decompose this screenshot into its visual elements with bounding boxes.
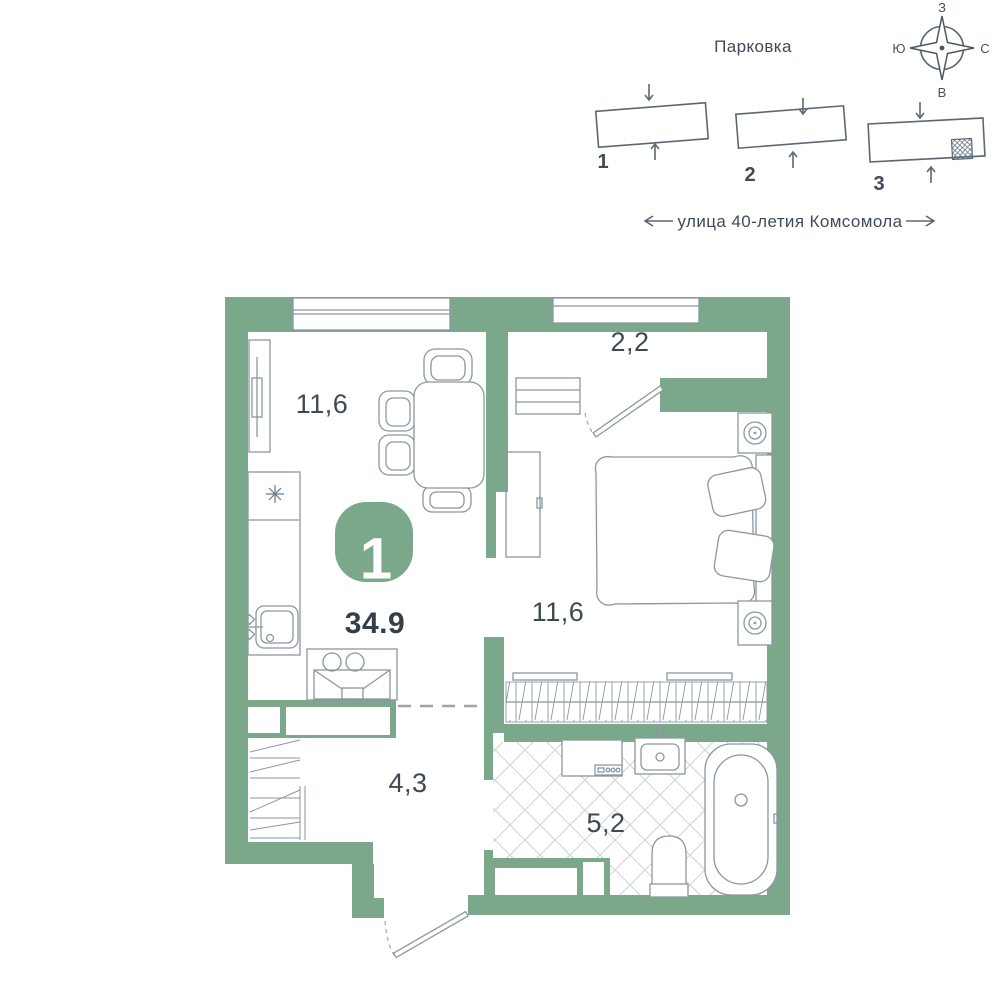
bedroom-wardrobe — [506, 452, 542, 557]
entrance-door — [385, 912, 468, 958]
bedroom-area-label: 11,6 — [532, 597, 585, 627]
bedside-table-lamp — [738, 413, 772, 453]
kitchen-window — [293, 298, 450, 330]
vent-shaft — [248, 707, 280, 733]
entrance-arrow-icon — [789, 152, 797, 168]
building-3-number: 3 — [873, 173, 884, 195]
site-plan: Парковка З С В Ю 1 2 — [596, 0, 990, 231]
built-in-closet — [506, 673, 767, 722]
kitchen-area-label: 11,6 — [296, 389, 349, 419]
bathroom — [484, 728, 778, 897]
balcony-door — [585, 386, 663, 437]
bathroom-area-label: 5,2 — [586, 808, 625, 838]
apartment-plan-page: Парковка З С В Ю 1 2 — [0, 0, 1000, 1000]
balcony-area-label: 2,2 — [610, 327, 649, 357]
building-2-number: 2 — [744, 164, 755, 186]
hob-icon — [266, 485, 284, 503]
entrance-arrow-icon — [927, 167, 935, 183]
hallway-area-label: 4,3 — [388, 768, 427, 798]
compass-icon: З С В Ю — [892, 0, 989, 100]
entrance-arrow-icon — [651, 144, 659, 160]
compass-north-label: С — [980, 41, 989, 56]
hallway-closet — [250, 740, 305, 840]
entrance-arrow-icon — [916, 102, 924, 118]
vent-shaft — [583, 862, 604, 895]
bedside-table-lamp — [738, 601, 772, 645]
building-1-number: 1 — [597, 151, 608, 173]
compass-east-label: В — [938, 85, 947, 100]
bed — [595, 455, 775, 605]
current-section-marker — [951, 138, 972, 159]
dining-table — [414, 382, 484, 488]
entrance-arrow-icon — [645, 84, 653, 100]
vent-shaft — [495, 868, 577, 895]
site-building-2: 2 — [736, 98, 846, 186]
fridge — [249, 340, 270, 452]
plan-canvas: Парковка З С В Ю 1 2 — [0, 0, 1000, 1000]
site-building-1: 1 — [596, 84, 708, 173]
door-swing-arc — [385, 921, 394, 955]
bathtub — [705, 744, 778, 895]
toilet — [650, 836, 688, 897]
balcony-bedroom-window — [516, 378, 580, 414]
street-caption: улица 40-летия Комсомола — [645, 212, 934, 231]
pillow — [713, 529, 776, 583]
washing-machine — [562, 740, 622, 776]
rooms-count-value: 1 — [360, 526, 392, 591]
rooms-count-badge: 1 — [335, 502, 413, 591]
street-name-label: улица 40-летия Комсомола — [678, 212, 903, 231]
arrow-left-icon — [645, 216, 673, 226]
balcony-glazing — [553, 298, 699, 323]
kitchen-sink — [245, 606, 298, 648]
compass-south-label: Ю — [892, 41, 905, 56]
parking-label: Парковка — [714, 37, 792, 56]
vent-shaft — [286, 707, 390, 735]
site-building-3-current: 3 — [868, 102, 985, 195]
compass-west-label: З — [938, 0, 946, 15]
floor-plan: 11,6 2,2 11,6 4,3 5,2 1 34.9 — [225, 297, 790, 958]
total-area-value: 34.9 — [345, 607, 405, 640]
arrow-right-icon — [906, 216, 934, 226]
entrance-arrow-icon — [799, 98, 807, 114]
stove — [307, 649, 397, 700]
